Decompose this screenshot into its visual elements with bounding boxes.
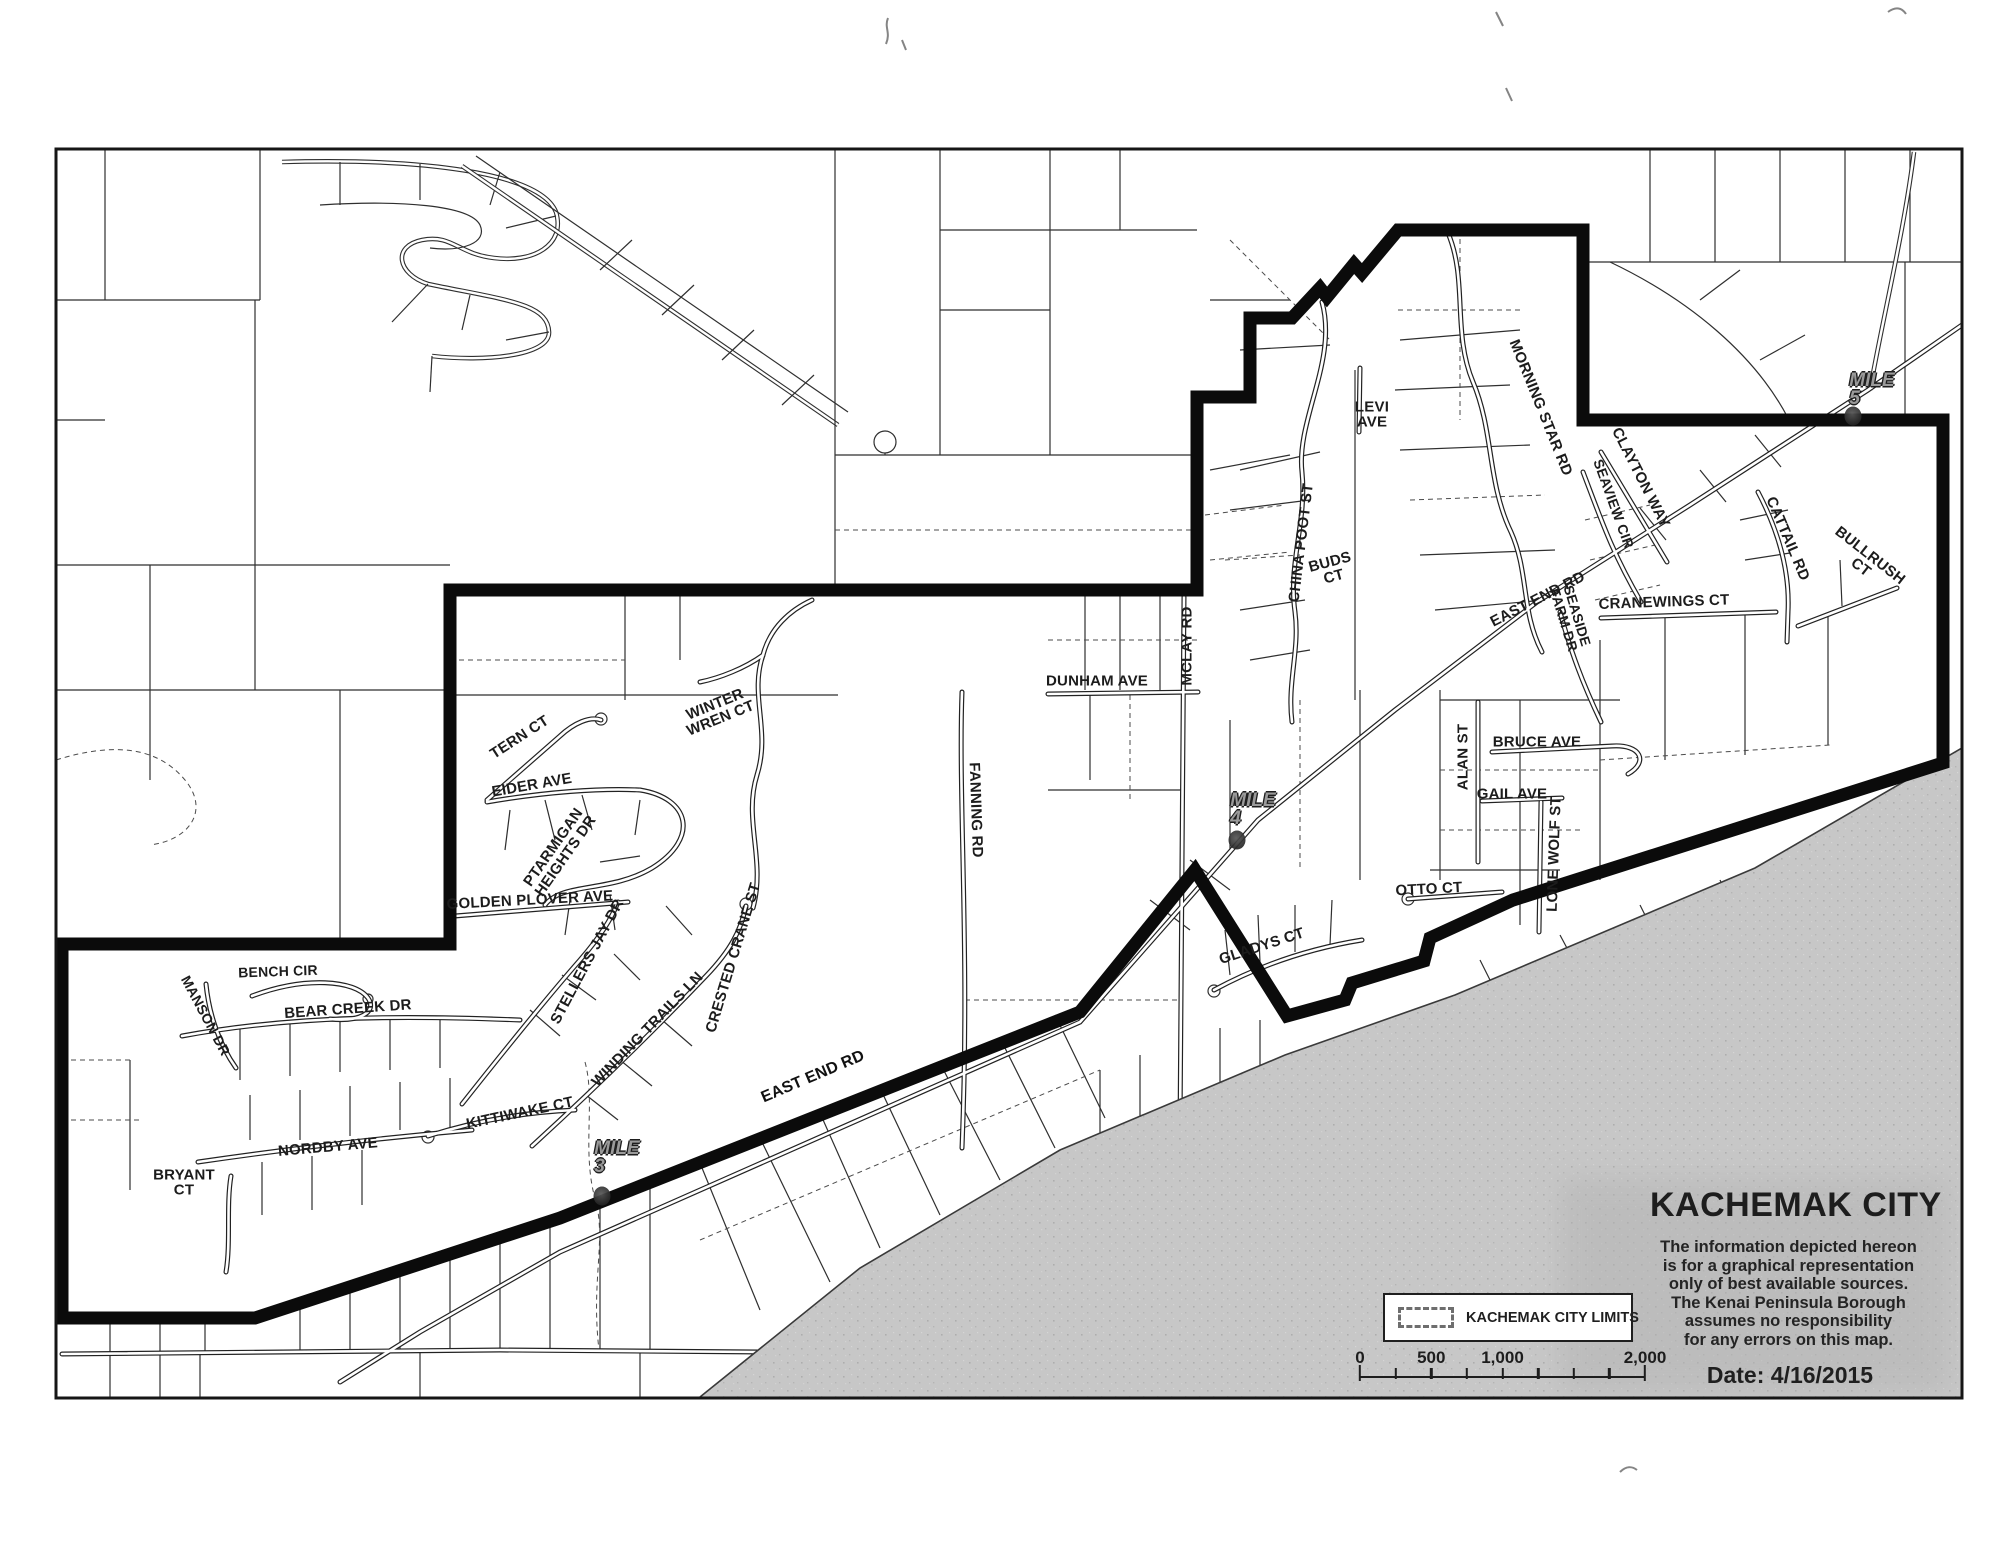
scale-number: 1,000 — [1481, 1348, 1524, 1368]
map-canvas: TERN CTEIDER AVEPTARMIGAN HEIGHTS DRGOLD… — [0, 0, 2000, 1550]
scale-number: 2,000 — [1624, 1348, 1667, 1368]
map-linework-svg — [0, 0, 2000, 1550]
city-limits-swatch-icon — [1398, 1307, 1454, 1328]
scale-tick — [1573, 1368, 1575, 1379]
scale-tick — [1537, 1368, 1539, 1379]
scale-bar: ' 05001,0002,000 — [1360, 1350, 1645, 1384]
scale-number: 0 — [1355, 1348, 1364, 1368]
legend-label: KACHEMAK CITY LIMITS — [1466, 1310, 1639, 1326]
scale-tick — [1501, 1368, 1503, 1379]
scanned-map-page: { "title_block": { "title": "KACHEMAK CI… — [0, 0, 2000, 1550]
legend-box: KACHEMAK CITY LIMITS — [1383, 1293, 1633, 1342]
scale-tick — [1466, 1368, 1468, 1379]
scale-tick — [1608, 1368, 1610, 1379]
scale-tick — [1394, 1368, 1396, 1379]
scale-tick — [1430, 1368, 1432, 1379]
scale-number: 500 — [1417, 1348, 1445, 1368]
